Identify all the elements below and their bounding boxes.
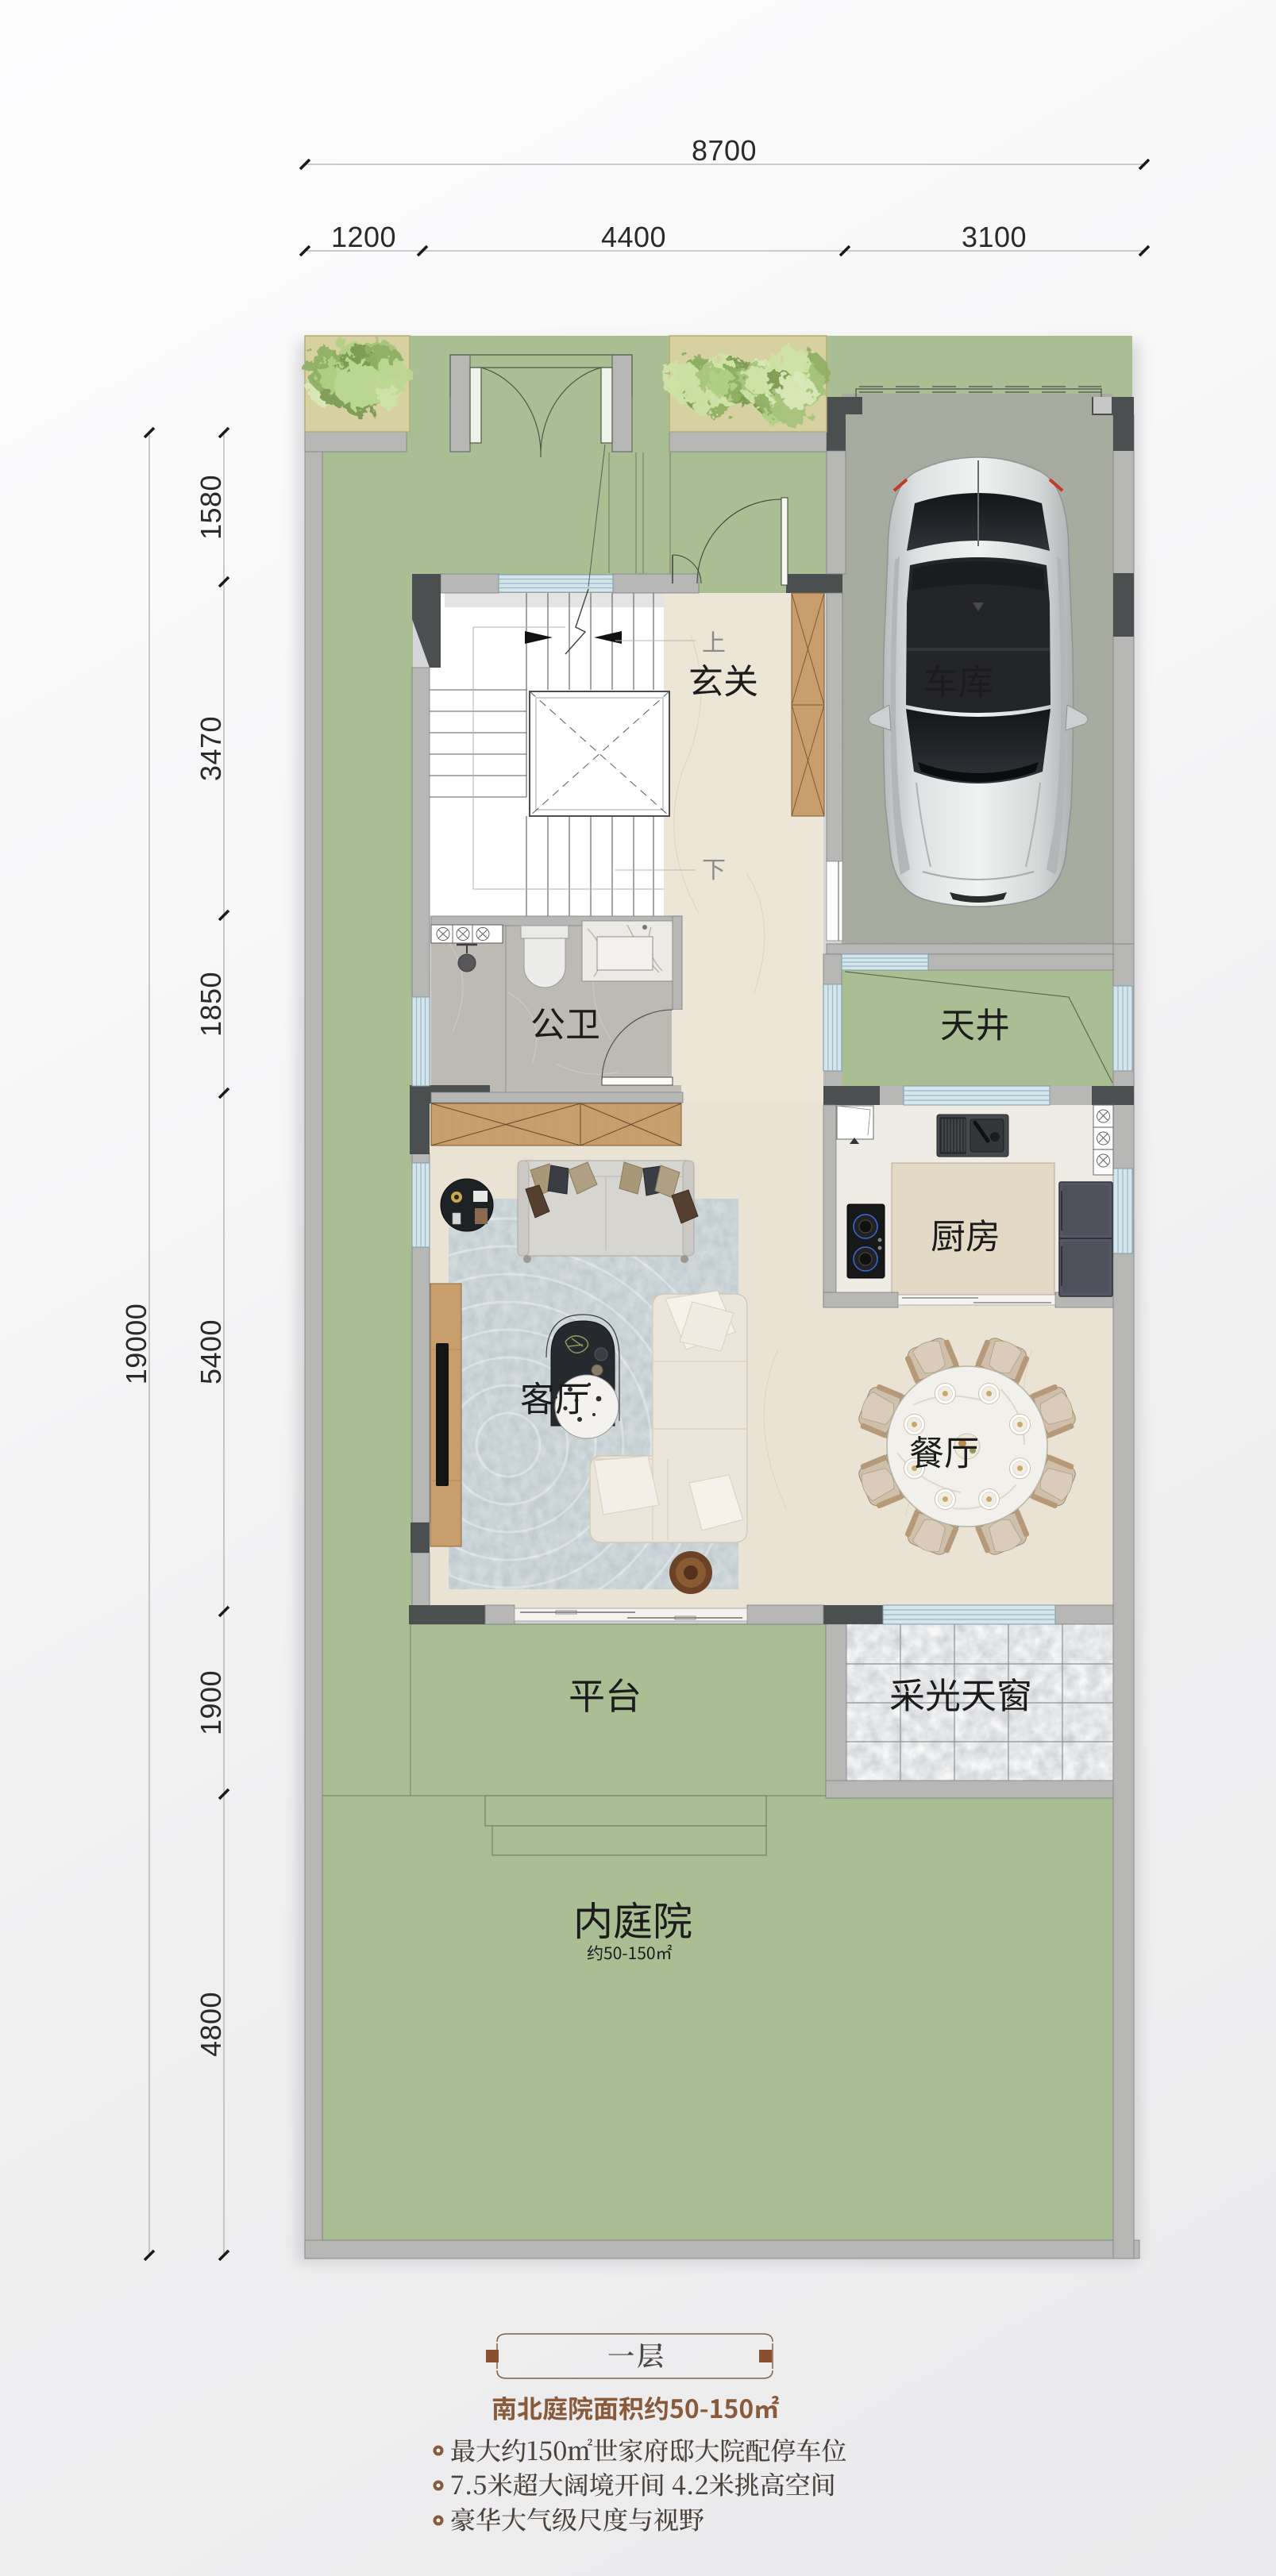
svg-text:8700: 8700 (692, 134, 757, 167)
svg-text:3470: 3470 (195, 716, 227, 781)
svg-text:1580: 1580 (195, 475, 227, 540)
svg-text:4800: 4800 (195, 1992, 227, 2057)
svg-text:1850: 1850 (195, 972, 227, 1037)
svg-text:5400: 5400 (195, 1319, 227, 1384)
svg-text:1200: 1200 (331, 221, 396, 253)
svg-text:4400: 4400 (601, 221, 666, 253)
svg-text:3100: 3100 (962, 221, 1027, 253)
svg-text:1900: 1900 (195, 1670, 227, 1735)
svg-text:19000: 19000 (120, 1303, 152, 1385)
